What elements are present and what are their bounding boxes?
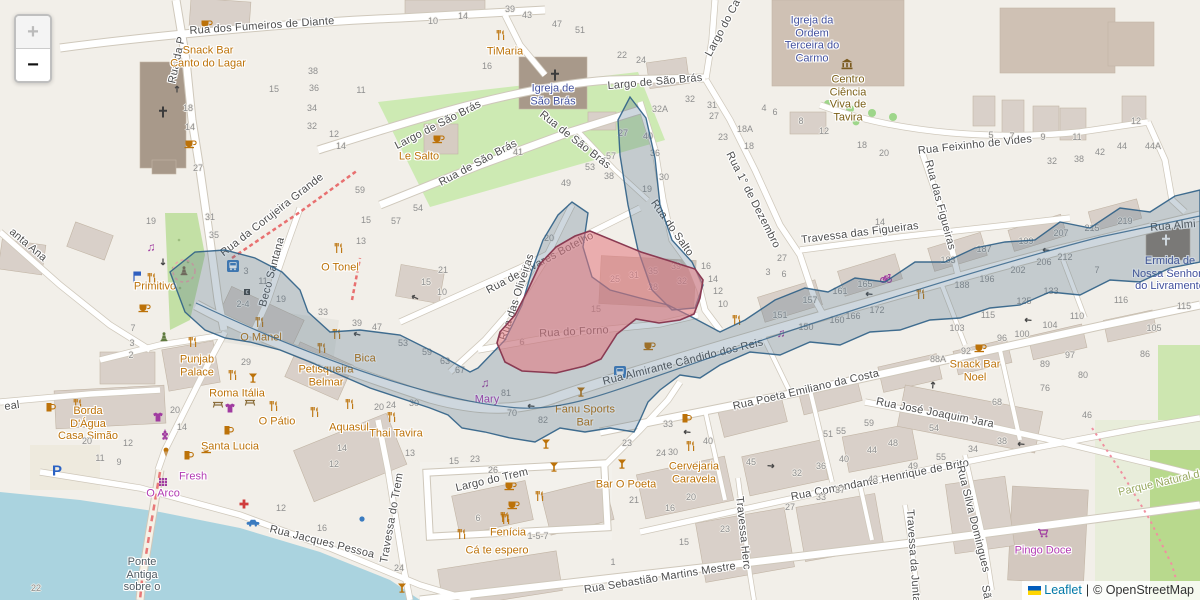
house-number: 20 [879,148,889,158]
poi-label: Bica [354,353,375,366]
street-label: Largo de São Brás [393,98,483,152]
house-number: 3 [243,266,248,276]
poi-label: Igreja de São Brás [521,82,585,107]
house-number: 23 [470,454,480,464]
house-number: 36 [309,83,319,93]
restaurant-icon [501,512,507,522]
restaurant-icon [333,329,339,339]
attribution-bar: Leaflet|© OpenStreetMap [1022,581,1200,600]
house-number: 40 [839,454,849,464]
house-number: 59 [355,185,365,195]
arrow-icon [528,404,535,408]
openstreetmap-link[interactable]: © OpenStreetMap [1093,583,1194,597]
house-number: 133 [1043,286,1058,296]
pharmacy-icon [240,500,249,509]
house-number: 38 [997,436,1007,446]
house-number: 18 [857,140,867,150]
water-area [0,492,420,600]
restaurant-icon [335,243,341,253]
house-number: 1-5-7 [527,531,548,541]
house-number: 206 [1036,257,1051,267]
pub-icon [47,403,56,412]
poi-label: Pingo Doce [1015,545,1072,558]
poi-label: TiMaria [487,46,523,59]
bus-icon [614,366,626,378]
house-number: 51 [823,429,833,439]
house-number: 81 [501,388,511,398]
house-number: 9 [116,457,121,467]
house-number: 33 [663,419,673,429]
house-number: 24 [394,563,404,573]
arrow-icon [1018,442,1025,446]
street-label: Rua da Corujeira Grande [218,171,326,259]
bar-icon [249,374,257,383]
bridge-ponte-antiga [140,470,160,600]
highlight-polygon-red[interactable] [497,231,703,373]
bike-icon [881,275,892,283]
house-number: 80 [1078,370,1088,380]
house-number: 26 [488,465,498,475]
poi-label: Fanu Sports Bar [550,403,620,428]
roads [0,0,1200,600]
house-number: 14 [708,274,718,284]
attribution-divider: | [1086,583,1089,597]
house-number: 55 [836,426,846,436]
house-number: 36 [816,461,826,471]
house-number: 188 [954,280,969,290]
house-number: 46 [1082,410,1092,420]
cross-icon [551,70,559,81]
cafe-icon [139,305,151,313]
house-number: 11 [258,276,267,286]
poi-label: Snack Bar Noel [948,358,1003,383]
arrow-icon [684,430,691,434]
house-number: 27 [618,128,628,138]
house-number: 6 [519,337,524,347]
house-number: 12 [713,286,723,296]
house-number: 161 [832,286,847,296]
garden-area [165,213,205,330]
house-number: 37 [835,485,845,495]
house-number: 18 [183,103,193,113]
icecream-icon [164,448,169,457]
house-number: 32 [307,121,317,131]
house-number: 165 [857,279,872,289]
house-number: 6 [781,269,786,279]
house-number: 104 [1042,320,1057,330]
street-label: Rua do Salto [648,198,696,259]
arrow-icon [1025,318,1032,322]
house-number: 14 [185,122,195,132]
poi-label: Mary [475,394,499,407]
house-number: 76 [1040,383,1050,393]
house-number: 2-4 [236,299,249,309]
street-label: Rua Silva Domingues [954,464,992,573]
house-number: 47 [372,322,382,332]
house-number: 20 [374,402,384,412]
house-number: 24 [636,55,646,65]
house-number: 15 [269,84,279,94]
grid-icon [159,478,167,486]
house-number: 150 [798,322,813,332]
house-number: 18 [744,141,754,151]
poi-label: O Pátio [259,416,296,429]
street-label: Rua das Oliveiras [497,252,536,342]
house-number: 5 [988,130,993,140]
house-number: 27 [709,111,719,121]
street-label: Rua Poeta Emiliano da Costa [732,367,881,412]
poi-label: Punjab Palace [173,353,221,378]
cross-icon [1162,235,1170,246]
pub-icon [683,414,692,423]
poi-label: O Manel [240,332,282,345]
street-label: Largo do Ca [703,0,743,59]
district-polygon-main[interactable] [170,190,1200,442]
house-number: 22 [31,583,41,593]
poi-label: Ermida de Nossa Senhora do Livramento [1130,255,1200,293]
house-number: 47 [552,19,562,29]
house-number: 48 [888,438,898,448]
house-number: 33 [816,492,826,502]
house-number: 34 [968,444,978,454]
street-label: eal [4,399,21,413]
house-number: 29 [241,357,251,367]
shirt-icon [225,404,235,413]
arrow-icon [161,259,165,266]
house-number: 215 [1084,223,1099,233]
house-number: 42 [1095,147,1105,157]
poi-label: Fresh [179,471,207,484]
poi-label: Cá te espero [466,545,529,558]
house-number: 19 [642,184,652,194]
poi-label: Petisqueira Belmar [290,363,362,388]
poi-label: Parque Natural da [1117,467,1200,499]
district-polygon-salto[interactable] [618,97,703,310]
house-number: 212 [1057,252,1072,262]
house-number: 49 [561,178,571,188]
house-number: 12 [329,459,339,469]
house-number: 39 [505,4,515,14]
house-number: 4 [761,103,766,113]
house-number: 40 [643,131,653,141]
house-number: 38 [604,171,614,181]
street-label: Largo de São Brás [607,72,703,92]
street-label: Rua José Joaquim Jara [875,396,995,431]
steps-corujeira [232,170,358,258]
street-label: Rua Jacques Pessoa [268,523,375,561]
house-number: 20 [544,233,554,243]
district-inner-boundary [196,216,1200,408]
poi-label: Snack Bar Canto do Lagar [167,44,249,69]
bar-icon [618,460,626,469]
house-number: 31 [205,212,215,222]
cafe-icon [202,446,214,454]
house-number: 2 [128,350,133,360]
house-number: 11 [95,453,104,463]
house-number: 196 [979,274,994,284]
zoom-in-button[interactable]: + [16,16,50,49]
house-number: 41 [513,147,523,157]
house-number: 49 [908,461,918,471]
restaurant-icon [458,529,464,539]
house-number: 96 [997,333,1007,343]
house-number: 100 [1014,329,1029,339]
poi-label: Thai Tavira [369,428,423,441]
house-number: 15 [679,537,689,547]
poi-label: Primitivo [134,281,176,294]
bar-icon [398,584,406,593]
house-number: 10 [718,299,728,309]
arrow-icon [354,332,361,337]
house-number: 12 [329,129,339,139]
house-number: 6 [475,513,480,523]
leaflet-link[interactable]: Leaflet [1044,583,1082,597]
house-number: 57 [391,216,401,226]
house-number: 199 [1018,236,1033,246]
house-number: 23 [720,524,730,534]
arrow-icon [767,464,774,468]
house-number: 20 [170,405,180,415]
house-number: 39 [671,261,681,271]
house-number: 160 [829,315,844,325]
house-number: 7 [130,323,135,333]
house-number: 44A [1145,141,1161,151]
music-icon [147,240,156,254]
parking-icon [52,463,62,480]
house-number: 15 [449,456,459,466]
park-largo-sao-bras [378,72,665,207]
street-label: Travessa do Trem [378,472,406,564]
house-number: 22 [617,50,627,60]
street-label: Beco Santana [257,236,287,308]
house-number: 86 [1140,349,1150,359]
house-number: 43 [522,10,532,20]
house-number: 10 [437,287,447,297]
house-number: 97 [1065,350,1075,360]
house-number: 103 [949,323,964,333]
house-numbers: 1814271510143943475138363432121411165941… [0,0,1200,600]
shirt-icon [153,413,163,422]
street-label: Largo do Trem [455,466,530,494]
picnic-icon [245,401,255,406]
street-label: Rua Sebastião Martins Mestre [583,560,737,596]
street-label: Travessa da Junta [904,509,922,600]
restaurant-icon [148,273,154,283]
house-number: 8 [798,116,803,126]
house-number: 16 [665,503,675,513]
statue-icon [161,332,168,341]
restaurant-icon [256,317,262,327]
house-number: 67 [455,365,465,375]
restaurant-icon [733,315,739,325]
park-boundary [1092,428,1182,600]
pub-icon [225,426,234,435]
house-number: 55 [936,452,946,462]
poi-label: O Arco [146,488,180,501]
house-number: 24 [386,400,396,410]
house-number: 125 [1016,296,1031,306]
house-number: 25 [610,274,620,284]
house-number: 7 [1009,131,1014,141]
house-number: 14 [336,141,346,151]
house-number: 70 [507,408,517,418]
street-label: Rua 1° de Dezembro [723,150,782,250]
house-number: 45 [746,457,756,467]
restaurant-icon [189,337,195,347]
house-number: 12 [123,438,133,448]
house-number: 115 [1177,301,1191,311]
restaurant-icon [536,491,542,501]
house-number: 183 [940,255,955,265]
poi-label: Centro Ciência Viva de Tavira [819,74,877,125]
pub-icon [185,451,194,460]
restaurant-icon [346,399,352,409]
house-number: 16 [701,261,711,271]
bar-icon [577,388,585,397]
poi-label: Borda D'Água Casa Simão [57,405,119,443]
arrow-icon [866,292,873,296]
house-number: 12 [819,126,829,136]
house-number: 59 [422,347,432,357]
house-number: 28 [648,282,658,292]
house-number: 15 [421,277,431,287]
house-number: 68 [992,397,1002,407]
arrow-icon [931,382,935,389]
dot-icon [359,516,364,521]
poi-label: Santa Lucia [201,441,259,454]
street-label: Rua de Álvares Botelho [484,230,596,297]
museum-icon [842,59,853,69]
house-number: 11 [1072,132,1081,142]
house-number: 54 [929,423,939,433]
house-number: 32 [677,276,687,286]
house-number: 10 [428,16,438,26]
street-label: Sã [979,584,993,600]
bus-icon [227,260,239,272]
house-number: 32 [792,468,802,478]
house-number: 24 [656,448,666,458]
house-number: 14 [337,443,347,453]
house-number: 44 [867,445,877,455]
house-number: 21 [629,495,639,505]
house-number: 53 [398,338,408,348]
house-number: 88A [930,354,946,364]
house-number: 57 [606,151,616,161]
poi-label: Igreja da Ordem Terceira do Carmo [775,15,849,66]
house-number: 15 [361,215,371,225]
house-number: 14 [177,422,187,432]
poi-label: Bar O Poeta [596,479,657,492]
ukraine-flag-icon [1028,586,1041,595]
house-number: 151 [772,310,787,320]
house-number: 27 [785,502,795,512]
house-number: 38 [1074,154,1084,164]
street-label: Rua da P [166,36,188,85]
cafe-icon [185,141,197,149]
street-label: Rua Almirante Cândido dos Reis [602,336,765,388]
street-label: Rua Comandante Henrique de Brito [790,457,970,503]
cafe-icon [505,483,517,491]
statue-icon [181,266,188,275]
restaurant-icon [318,343,324,353]
house-number: 32 [1047,156,1057,166]
street-label: Travessa Herc [733,496,753,571]
street-label: Travessa das Figueiras [801,220,920,246]
house-number: 166 [845,311,860,321]
house-number: 12 [1131,116,1141,126]
taxi-icon [247,520,260,527]
house-number: 11 [356,85,365,95]
cafe-icon [201,21,213,29]
street-label: Rua das Figueiras [922,159,958,252]
poi-label: Roma Itália [209,388,265,401]
house-number: 82 [538,415,548,425]
house-number: 219 [1117,216,1132,226]
house-number: 115 [981,310,995,320]
house-number: 59 [864,418,874,428]
house-number: 23 [718,132,728,142]
house-number: 23 [622,438,632,448]
house-number: 51 [575,25,585,35]
restaurant-icon [229,370,235,380]
cafe-icon [508,502,520,510]
cafe-icon [433,136,445,144]
house-number: 172 [869,305,884,315]
buildings [0,0,1190,600]
house-number: 21 [438,265,448,275]
house-number: 13 [356,236,366,246]
poi-label: Ponte Antiga sobre o [117,556,167,594]
map-canvas[interactable]: ♫ P € [0,0,1200,600]
house-number: 116 [1114,295,1128,305]
cafe-icon [644,343,656,351]
house-number: 15 [591,304,601,314]
park-natural-area [1095,420,1200,600]
cafe-icon [975,345,987,353]
house-number: 40 [703,436,713,446]
house-number: 16 [317,523,327,533]
house-number: 6 [772,107,777,117]
street-label: Rua Almi [1150,218,1196,234]
zoom-control: + − [14,14,52,83]
street-label: anta Ana [7,226,49,264]
house-number: 43 [868,474,878,484]
house-number: 13 [405,448,415,458]
house-number: 187 [976,244,991,254]
house-number: 44 [1117,141,1127,151]
street-label: Rua Feixinho de Vides [917,133,1032,157]
house-number: 92 [961,346,971,356]
restaurant-icon [917,289,923,299]
house-number: 7 [1094,265,1099,275]
cart-icon [1038,530,1048,538]
restaurant-icon [270,401,276,411]
music-icon [777,326,786,340]
restaurant-icon [74,399,80,409]
house-number: 3 [765,267,770,277]
house-number: 34 [307,103,317,113]
zoom-out-button[interactable]: − [16,49,50,81]
road-casings [0,0,1200,600]
picnic-icon [213,403,223,408]
house-number: 20 [686,492,696,502]
poi-label: Aquasul [329,422,369,435]
house-number: 54 [413,203,423,213]
bar-icon [550,463,558,472]
house-number: 202 [1010,265,1025,275]
house-number: 63 [440,356,450,366]
restaurant-icon [311,407,317,417]
